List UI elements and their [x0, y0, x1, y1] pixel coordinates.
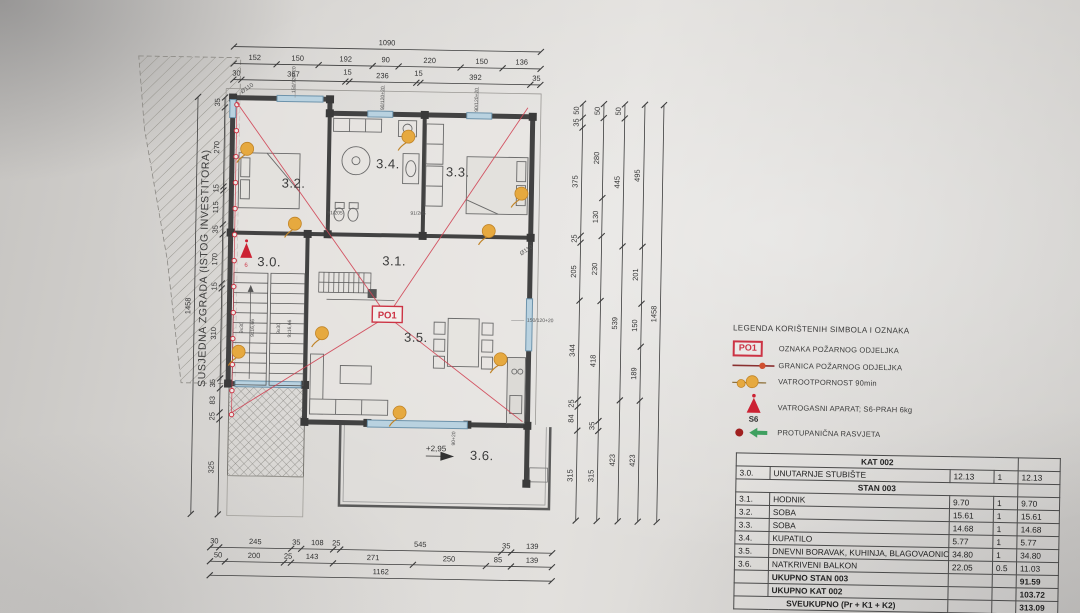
svg-text:25: 25	[332, 538, 340, 547]
svg-text:85: 85	[494, 555, 502, 564]
svg-text:25: 25	[207, 412, 216, 420]
room-label-30: 3.0.	[257, 254, 281, 269]
table-cell	[734, 583, 768, 597]
room-label-35: 3.5.	[404, 330, 428, 345]
svg-text:200: 200	[248, 551, 261, 560]
table-cell: 12.13	[1018, 471, 1060, 485]
svg-text:35: 35	[587, 422, 596, 430]
svg-text:192: 192	[339, 54, 352, 63]
table-cell: 1	[994, 470, 1018, 483]
legend-item-label: PROTUPANIČNA RASVJETA	[777, 429, 880, 440]
svg-text:201: 201	[631, 268, 640, 281]
svg-text:35: 35	[572, 118, 581, 126]
table-cell: 313.09	[1016, 601, 1058, 613]
fire-boundary-icon	[732, 360, 778, 371]
table-cell	[992, 600, 1016, 613]
svg-text:35: 35	[532, 74, 540, 83]
svg-text:9x16,66: 9x16,66	[250, 319, 256, 337]
svg-text:245: 245	[249, 537, 262, 546]
svg-text:1458: 1458	[649, 306, 658, 323]
table-cell: 15.61	[1017, 510, 1059, 524]
table-cell: 1	[993, 548, 1017, 561]
table-cell: 1	[993, 496, 1017, 509]
svg-text:280: 280	[592, 152, 601, 165]
table-cell	[734, 570, 768, 584]
table-cell: 3.6.	[734, 557, 768, 571]
fire-resistance-icon	[732, 374, 778, 389]
legend-item-label: OZNAKA POŽARNOG ODJELJKA	[779, 345, 899, 356]
svg-text:315: 315	[565, 469, 574, 482]
legend-item-panic-light: PROTUPANIČNA RASVJETA	[731, 426, 961, 442]
kitchen-counter	[506, 357, 525, 423]
table-cell: 0.5	[992, 561, 1016, 574]
svg-text:139: 139	[526, 542, 539, 551]
legend-item-boundary: GRANICA POŽARNOG ODJELJKA	[732, 360, 962, 374]
table-cell: 1	[993, 535, 1017, 548]
fire-extinguisher-icon: S6	[731, 392, 778, 423]
table-cell	[948, 574, 992, 588]
table-cell	[992, 587, 1016, 600]
svg-text:423: 423	[628, 454, 637, 467]
legend-item-extinguisher: S6 VATROGASNI APARAT; S6-PRAH 6kg	[731, 392, 961, 426]
svg-text:1090: 1090	[379, 38, 396, 47]
room-label-36: 3.6.	[470, 448, 494, 463]
svg-text:418: 418	[588, 355, 597, 368]
svg-text:15: 15	[343, 67, 351, 76]
svg-text:270: 270	[212, 141, 221, 154]
svg-text:189: 189	[629, 367, 638, 380]
svg-text:445: 445	[613, 176, 622, 189]
svg-text:230: 230	[590, 263, 599, 276]
svg-text:S6: S6	[749, 415, 759, 423]
svg-text:35: 35	[502, 541, 510, 550]
floor-plan-sheet: SUSJEDNA ZGRADA (ISTOG INVESTITORA)	[0, 0, 1080, 613]
table-cell: 3.2.	[735, 505, 769, 519]
table-cell: 3.5.	[735, 544, 769, 558]
svg-text:84: 84	[566, 414, 575, 422]
svg-text:50: 50	[214, 550, 222, 559]
svg-text:250: 250	[443, 554, 456, 563]
table-cell: 3.3.	[735, 518, 769, 532]
svg-text:150: 150	[291, 54, 304, 63]
legend: LEGENDA KORIŠTENIH SIMBOLA I OZNAKA PO1 …	[731, 323, 963, 446]
svg-text:90+20: 90+20	[451, 431, 457, 445]
terrace-hatch	[227, 386, 305, 517]
svg-text:25: 25	[567, 399, 576, 407]
table-cell: 34.80	[1017, 549, 1059, 563]
panic-light-icon	[731, 426, 777, 439]
svg-text:108: 108	[311, 538, 324, 547]
legend-item-label: GRANICA POŽARNOG ODJELJKA	[778, 362, 902, 373]
table-cell: 15.61	[949, 509, 993, 523]
legend-item-fire-resistance: VATROOTPORNOST 90min	[732, 374, 962, 392]
room-label-32: 3.2.	[282, 175, 306, 190]
table-cell: 11.03	[1016, 562, 1058, 576]
table-cell: 22.05	[948, 561, 992, 575]
svg-text:392: 392	[469, 73, 482, 82]
table-cell: 5.77	[1017, 536, 1059, 550]
svg-text:143: 143	[306, 552, 319, 561]
po1-legend-symbol: PO1	[733, 340, 763, 356]
svg-text:35: 35	[213, 98, 222, 106]
svg-text:25: 25	[284, 552, 292, 561]
svg-text:115: 115	[211, 201, 220, 213]
svg-text:236: 236	[376, 71, 389, 80]
area-table: KAT 002 3.0. UNUTARNJE STUBIŠTE 12.13 1 …	[733, 452, 1060, 613]
svg-text:15: 15	[210, 282, 219, 290]
svg-text:30: 30	[232, 69, 240, 78]
svg-text:91/205: 91/205	[327, 210, 343, 216]
svg-text:15: 15	[211, 184, 220, 192]
table-cell: 3.4.	[735, 531, 769, 545]
svg-text:130: 130	[591, 211, 600, 224]
table-cell	[948, 600, 992, 613]
svg-text:25: 25	[570, 234, 579, 242]
svg-text:50: 50	[614, 107, 623, 115]
svg-text:30: 30	[210, 536, 218, 545]
table-cell: 5.77	[949, 535, 993, 549]
svg-text:310: 310	[209, 327, 218, 340]
svg-text:315: 315	[586, 470, 595, 483]
svg-text:150/120+20: 150/120+20	[527, 318, 554, 324]
svg-text:91/205: 91/205	[410, 211, 426, 217]
drawing-content: SUSJEDNA ZGRADA (ISTOG INVESTITORA)	[0, 0, 1080, 613]
table-cell: 1	[993, 522, 1017, 535]
svg-text:15: 15	[414, 69, 422, 78]
po1-plan-label: PO1	[378, 310, 398, 321]
table-cell: 3.0.	[736, 466, 770, 480]
legend-item-label: VATROGASNI APARAT; S6-PRAH 6kg	[778, 404, 913, 415]
svg-text:90/120+20: 90/120+20	[380, 86, 386, 110]
table-cell: 9.70	[949, 496, 993, 510]
svg-text:50: 50	[593, 107, 602, 115]
svg-text:152: 152	[248, 53, 261, 62]
svg-text:50: 50	[572, 106, 581, 114]
table-cell: 14.68	[1017, 523, 1059, 537]
table-cell: 91.59	[1016, 575, 1058, 589]
svg-text:545: 545	[414, 540, 427, 549]
svg-text:367: 367	[287, 70, 300, 79]
svg-text:220: 220	[423, 56, 436, 65]
room-label-31: 3.1.	[382, 253, 406, 268]
svg-text:35: 35	[208, 379, 217, 387]
table-cell: 14.68	[949, 522, 993, 536]
svg-text:375: 375	[571, 175, 580, 188]
svg-text:9x30: 9x30	[239, 322, 245, 333]
room-label-34: 3.4.	[376, 156, 400, 171]
svg-text:1162: 1162	[373, 567, 389, 576]
svg-text:35: 35	[292, 538, 300, 547]
svg-text:35: 35	[211, 225, 220, 233]
room-label-33: 3.3.	[446, 164, 470, 179]
svg-text:423: 423	[608, 454, 617, 467]
svg-text:150: 150	[630, 319, 639, 332]
svg-text:1458: 1458	[183, 297, 192, 314]
table-cell	[1018, 484, 1060, 498]
svg-text:90/120+20: 90/120+20	[474, 88, 480, 112]
svg-text:325: 325	[206, 461, 215, 474]
table-cell: 103.72	[1016, 588, 1058, 602]
table-cell: 3.1.	[736, 492, 770, 506]
legend-item-label: VATROOTPORNOST 90min	[778, 378, 877, 389]
table-cell	[992, 574, 1016, 587]
svg-text:344: 344	[568, 344, 577, 357]
table-cell	[1018, 458, 1060, 472]
legend-item-po1: PO1 OZNAKA POŽARNOG ODJELJKA	[733, 340, 963, 360]
svg-text:136: 136	[515, 58, 528, 67]
svg-text:495: 495	[633, 169, 642, 182]
svg-text:170: 170	[210, 253, 219, 266]
svg-text:9x16,66: 9x16,66	[287, 319, 293, 337]
svg-text:83: 83	[208, 396, 217, 404]
svg-text:139: 139	[526, 556, 539, 565]
svg-text:205: 205	[569, 265, 578, 278]
svg-text:9x30: 9x30	[276, 323, 282, 334]
table-cell: 12.13	[950, 470, 994, 484]
svg-text:271: 271	[367, 553, 380, 562]
table-cell: 34.80	[949, 548, 993, 562]
table-cell: 9.70	[1018, 497, 1060, 511]
svg-text:539: 539	[610, 317, 619, 330]
table-cell	[948, 587, 992, 601]
elevation-mark: +2,95	[426, 444, 447, 453]
table-cell: 1	[993, 509, 1017, 522]
svg-text:90: 90	[381, 55, 389, 64]
svg-text:150: 150	[475, 57, 488, 66]
